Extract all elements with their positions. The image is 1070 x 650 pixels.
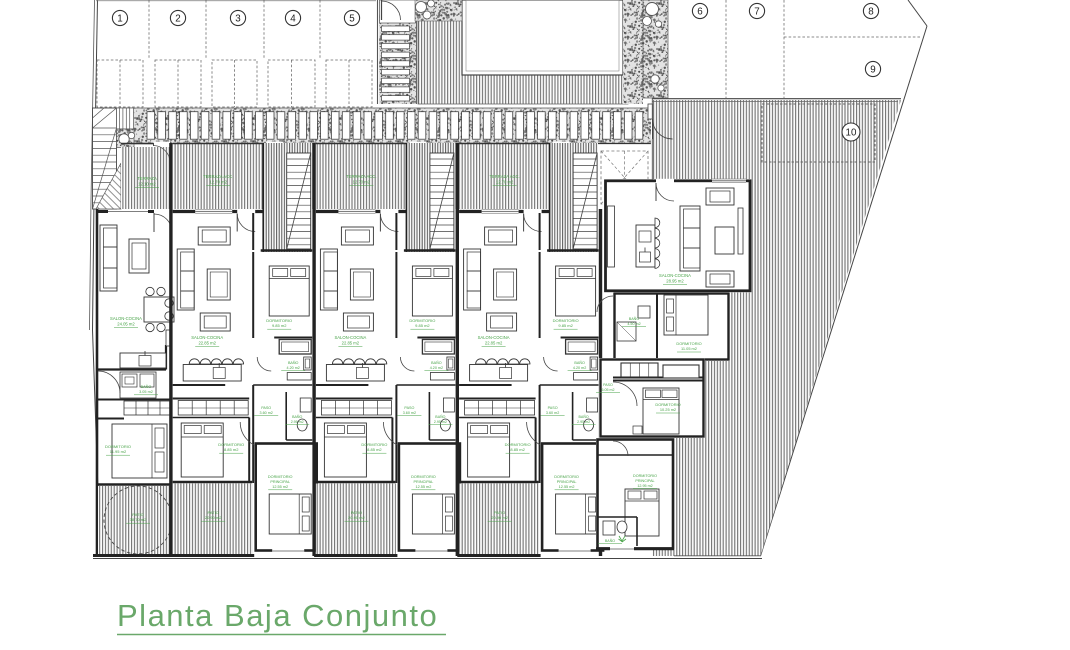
svg-text:8.85 m2: 8.85 m2 — [367, 447, 382, 452]
svg-text:12.70 m2: 12.70 m2 — [496, 179, 514, 184]
svg-text:20.90 m2: 20.90 m2 — [348, 515, 365, 520]
svg-text:10.25 m2: 10.25 m2 — [660, 407, 676, 412]
svg-text:2: 2 — [175, 13, 180, 24]
svg-text:DORMITORIO: DORMITORIO — [633, 474, 657, 478]
svg-text:12.70 m2: 12.70 m2 — [209, 179, 227, 184]
svg-text:9: 9 — [870, 64, 875, 75]
svg-text:BAÑO: BAÑO — [292, 414, 302, 419]
svg-text:6: 6 — [697, 6, 703, 17]
svg-text:DORMITORIO: DORMITORIO — [554, 475, 579, 479]
svg-text:BAÑO: BAÑO — [431, 360, 442, 365]
svg-text:SALON-COCINA: SALON-COCINA — [659, 273, 691, 278]
svg-text:9.85 m2: 9.85 m2 — [415, 323, 430, 328]
svg-text:10: 10 — [846, 127, 857, 138]
svg-text:DORMITORIO: DORMITORIO — [268, 475, 293, 479]
svg-text:12.55 m2: 12.55 m2 — [272, 485, 288, 489]
svg-text:2.95 m2: 2.95 m2 — [291, 420, 304, 424]
svg-text:PASO: PASO — [603, 383, 613, 387]
svg-text:24.05 m2: 24.05 m2 — [117, 321, 135, 326]
svg-text:20.90 m2: 20.90 m2 — [491, 515, 508, 520]
svg-text:9.85 m2: 9.85 m2 — [272, 323, 287, 328]
svg-text:PASO: PASO — [261, 406, 271, 410]
svg-text:22.85 m2: 22.85 m2 — [342, 340, 360, 345]
svg-text:4.20 m2: 4.20 m2 — [287, 366, 300, 370]
svg-text:BAÑO: BAÑO — [141, 384, 152, 389]
svg-text:DORMITORIO: DORMITORIO — [411, 475, 436, 479]
svg-text:3.60 m2: 3.60 m2 — [403, 411, 416, 415]
svg-text:BAÑO: BAÑO — [579, 414, 589, 419]
svg-text:12.55 m2: 12.55 m2 — [559, 485, 575, 489]
svg-text:BAÑO: BAÑO — [605, 538, 615, 543]
svg-text:TERRAZA ACC.: TERRAZA ACC. — [203, 174, 233, 179]
svg-text:20.90 m2: 20.90 m2 — [205, 515, 222, 520]
svg-text:PRINCIPAL: PRINCIPAL — [557, 480, 577, 484]
svg-text:6.05 m2: 6.05 m2 — [602, 388, 615, 392]
svg-text:4.50 m2: 4.50 m2 — [627, 322, 640, 326]
svg-text:PASO: PASO — [548, 406, 558, 410]
svg-text:PRINCIPAL: PRINCIPAL — [270, 480, 290, 484]
svg-text:3.60 m2: 3.60 m2 — [546, 411, 559, 415]
svg-text:9.85 m2: 9.85 m2 — [558, 323, 573, 328]
svg-text:22.85 m2: 22.85 m2 — [198, 340, 216, 345]
svg-text:PRINCIPAL: PRINCIPAL — [414, 480, 434, 484]
svg-text:TERRAZA: TERRAZA — [137, 176, 157, 181]
svg-text:4.20 m2: 4.20 m2 — [573, 366, 586, 370]
svg-text:SALON-COCINA: SALON-COCINA — [334, 335, 366, 340]
svg-text:8: 8 — [868, 6, 874, 17]
svg-text:TERRAZA ACC.: TERRAZA ACC. — [489, 174, 519, 179]
svg-text:28.95 m2: 28.95 m2 — [666, 278, 684, 283]
svg-text:12.70 m2: 12.70 m2 — [353, 179, 371, 184]
svg-text:SALON-COCINA: SALON-COCINA — [478, 335, 510, 340]
svg-text:BAÑO: BAÑO — [574, 360, 585, 365]
svg-text:BAÑO: BAÑO — [435, 414, 445, 419]
svg-text:11.05 m2: 11.05 m2 — [681, 346, 697, 351]
svg-text:2.95 m2: 2.95 m2 — [434, 420, 447, 424]
svg-text:22.85 m2: 22.85 m2 — [485, 340, 503, 345]
svg-text:BAÑO: BAÑO — [288, 360, 299, 365]
svg-text:4.20 m2: 4.20 m2 — [430, 366, 443, 370]
svg-text:12.10 m2: 12.10 m2 — [138, 181, 156, 186]
svg-text:12.55 m2: 12.55 m2 — [415, 485, 431, 489]
svg-text:3.60 m2: 3.60 m2 — [260, 411, 273, 415]
svg-text:5: 5 — [349, 13, 355, 24]
svg-text:3: 3 — [235, 13, 241, 24]
svg-text:11.95 m2: 11.95 m2 — [110, 449, 127, 454]
svg-text:PASO: PASO — [404, 406, 414, 410]
svg-text:SALON-COCINA: SALON-COCINA — [110, 316, 142, 321]
svg-text:1: 1 — [117, 13, 122, 24]
svg-text:PRINCIPAL: PRINCIPAL — [635, 479, 654, 483]
svg-text:4: 4 — [290, 13, 296, 24]
svg-text:3.05 m2: 3.05 m2 — [139, 390, 153, 394]
svg-text:TERRAZA ACC.: TERRAZA ACC. — [346, 174, 376, 179]
svg-text:8.85 m2: 8.85 m2 — [510, 447, 525, 452]
svg-text:38.70 m2: 38.70 m2 — [130, 517, 147, 522]
svg-text:SALON-COCINA: SALON-COCINA — [191, 335, 223, 340]
svg-text:12.95 m2: 12.95 m2 — [637, 484, 652, 488]
svg-text:7: 7 — [754, 6, 759, 17]
svg-text:Planta Baja Conjunto: Planta Baja Conjunto — [117, 598, 438, 633]
svg-text:8.85 m2: 8.85 m2 — [224, 447, 239, 452]
svg-text:BAÑO: BAÑO — [629, 316, 640, 321]
svg-text:2.95 m2: 2.95 m2 — [577, 420, 590, 424]
